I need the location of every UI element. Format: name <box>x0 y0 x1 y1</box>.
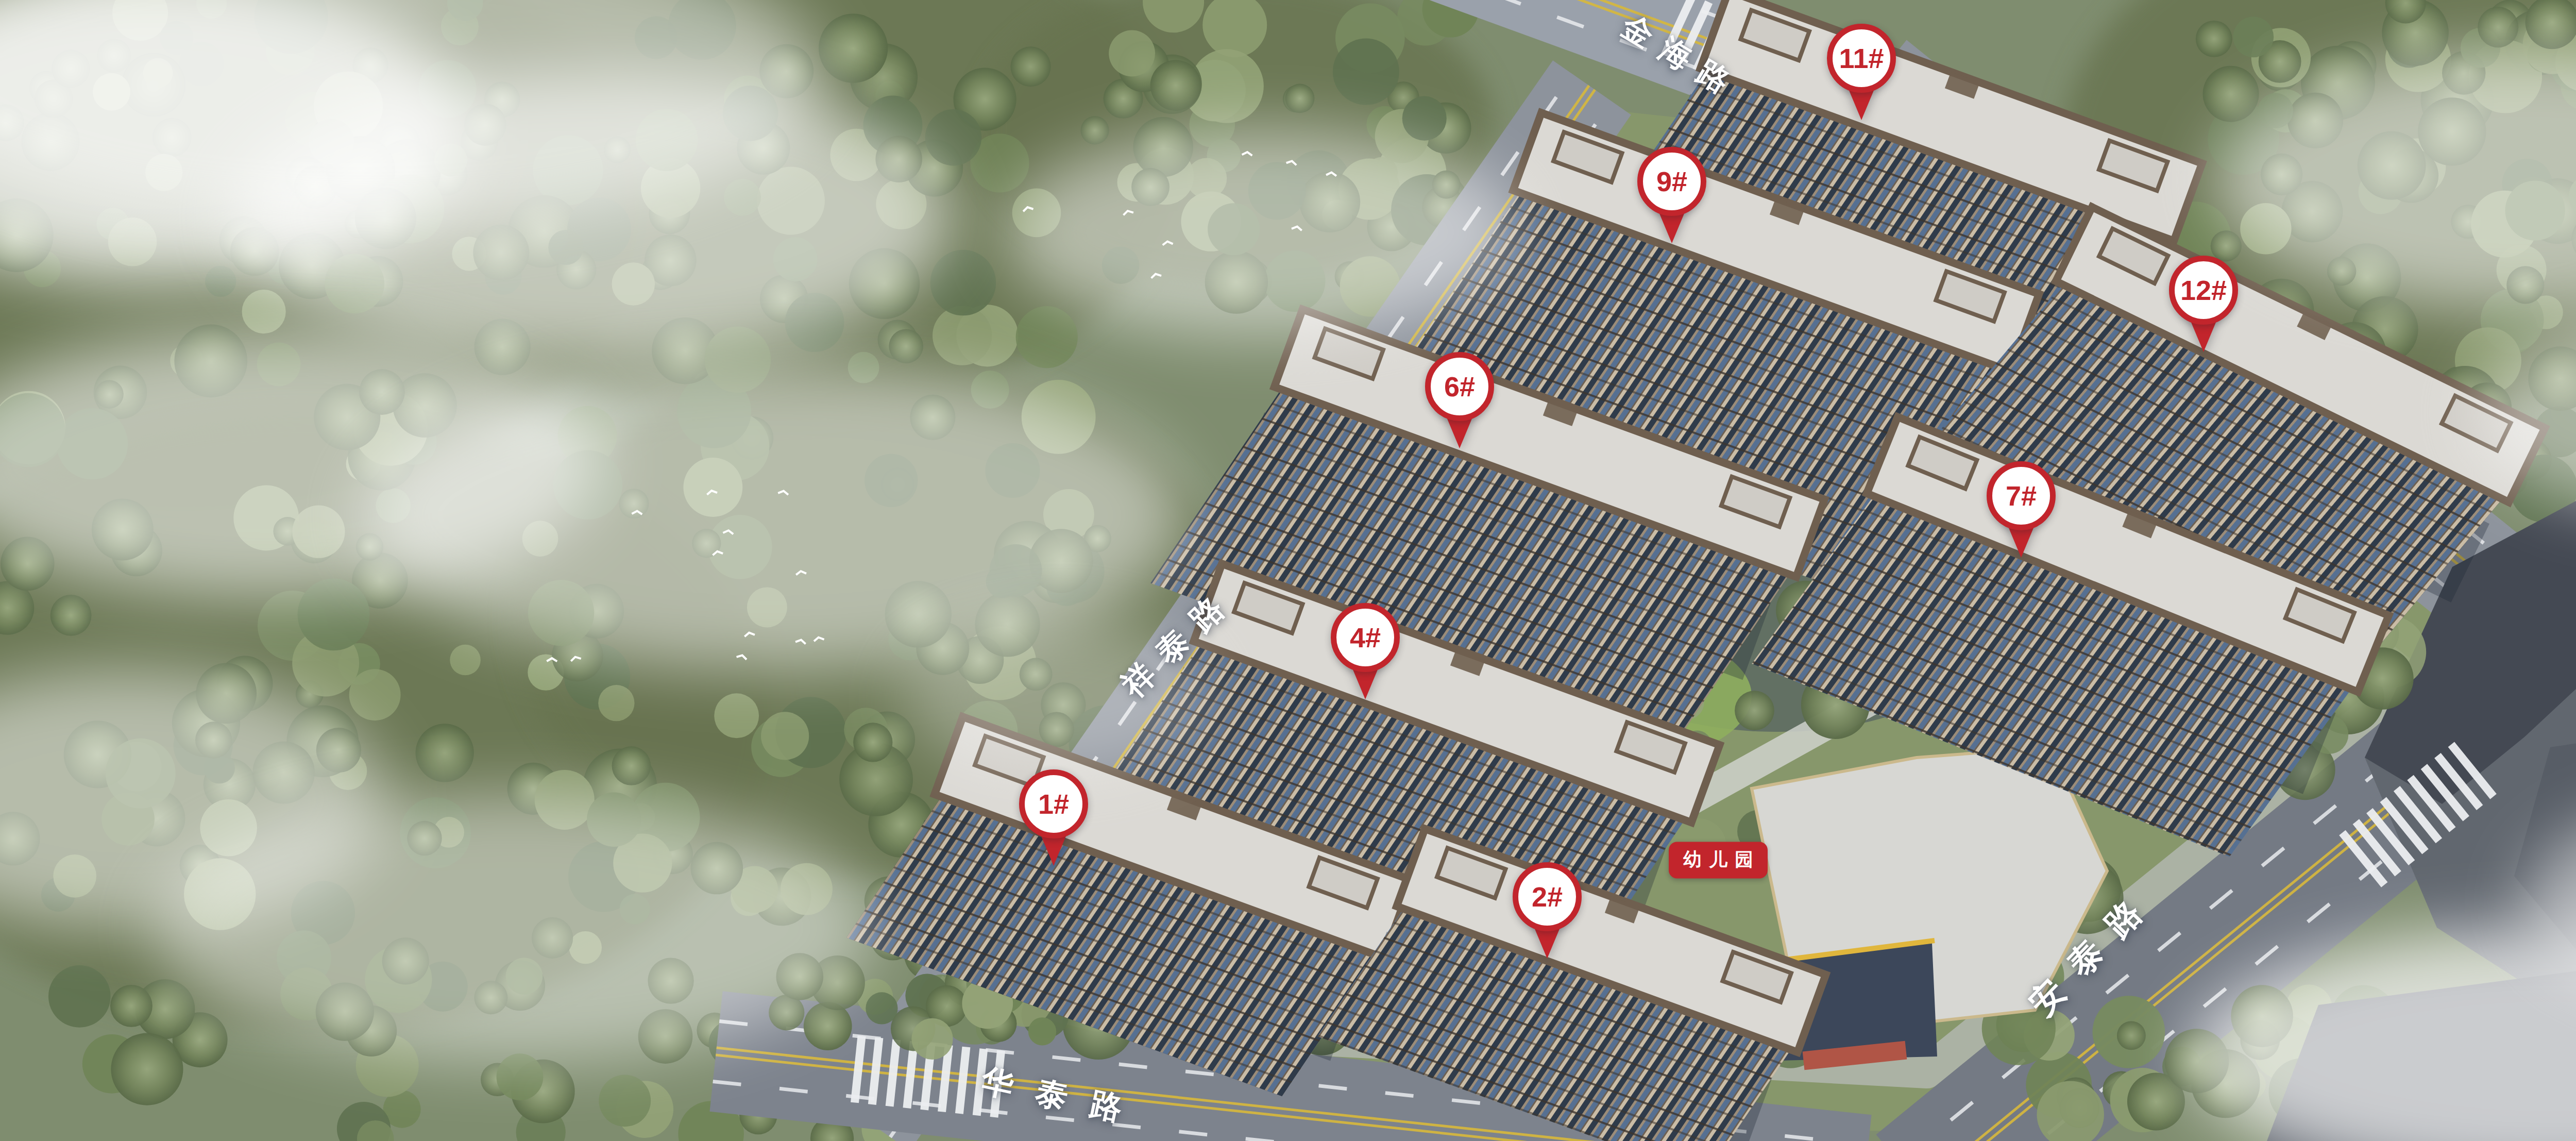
pin-label: 4# <box>1331 603 1400 672</box>
building-marker-4[interactable]: 4# <box>1331 603 1400 706</box>
building-marker-7[interactable]: 7# <box>1987 461 2056 564</box>
building-marker-12[interactable]: 12# <box>2169 256 2238 359</box>
pin-label: 2# <box>1513 862 1582 931</box>
pin-label: 11# <box>1827 24 1896 93</box>
building-marker-6[interactable]: 6# <box>1425 352 1494 455</box>
building-marker-2[interactable]: 2# <box>1513 862 1582 965</box>
pin-label: 12# <box>2169 256 2238 325</box>
site-plan-render <box>0 0 2576 1141</box>
pin-label: 6# <box>1425 352 1494 421</box>
pin-label: 9# <box>1637 147 1706 216</box>
kindergarten-badge: 幼儿园 <box>1669 842 1768 879</box>
aerial-site-plan: 幼儿园 鸟瞰图 1#2#4#6#7#9#11#12#金海路祥泰路安泰路华泰路 <box>0 0 2576 1141</box>
pin-label: 7# <box>1987 461 2056 530</box>
building-marker-9[interactable]: 9# <box>1637 147 1706 250</box>
pin-label: 1# <box>1019 769 1088 838</box>
building-marker-11[interactable]: 11# <box>1827 24 1896 127</box>
building-marker-1[interactable]: 1# <box>1019 769 1088 872</box>
